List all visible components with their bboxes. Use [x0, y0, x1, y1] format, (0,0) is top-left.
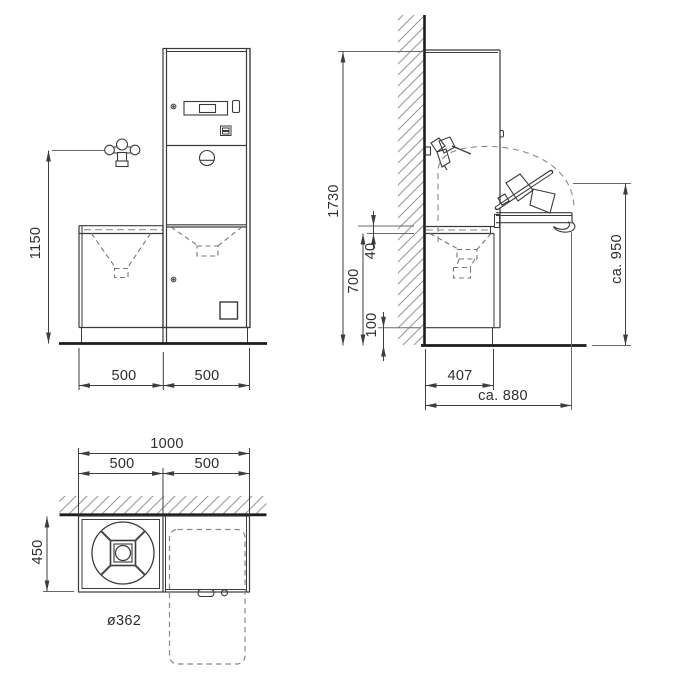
dim-front-right-module-width: 500 [194, 368, 219, 384]
front-view [49, 49, 268, 391]
dim-side-plinth-height: 100 [364, 312, 380, 337]
lock-upper [171, 104, 176, 109]
basin-outline-dashed-right [171, 227, 242, 256]
dim-top-basin-diameter: ø362 [107, 613, 141, 629]
washbasin-counter [79, 226, 163, 328]
lock-lower [171, 277, 176, 282]
service-knob [200, 151, 215, 166]
dim-side-open-depth: ca. 880 [478, 388, 528, 404]
table-latch-plan [198, 590, 228, 597]
dim-front-left-module-width: 500 [111, 368, 136, 384]
dim-side-overall-height: 1730 [326, 184, 342, 217]
top-view [43, 448, 267, 664]
faucet-front [105, 139, 140, 167]
dim-top-left-module-width: 500 [109, 456, 134, 472]
dim-front-faucet-height-lines [49, 151, 105, 344]
folding-table-tilted [497, 172, 555, 213]
faucet-side [426, 137, 472, 170]
basin-outline-dashed-side [430, 234, 491, 279]
coin-slot [221, 126, 232, 136]
access-panel [220, 302, 238, 319]
basin-outline-dashed-left [92, 234, 151, 278]
tall-cabinet [163, 49, 250, 344]
wall-hatch-side [398, 15, 424, 345]
dim-top-overall-width: 1000 [150, 436, 183, 452]
dim-side-body-depth: 407 [447, 368, 472, 384]
dim-side-lines [338, 52, 631, 411]
technical-drawing-sheet: 1150 500 500 1730 700 40 100 ca. 950 407… [0, 0, 680, 681]
dim-top-depth: 450 [30, 539, 46, 564]
dim-side-table-offset: 40 [363, 243, 379, 260]
folding-table-open [495, 213, 575, 232]
plinth-front [79, 49, 250, 344]
dim-side-worktop-height: 700 [346, 268, 362, 293]
cabinet-side [425, 50, 504, 346]
counter-side [425, 227, 495, 234]
side-view [338, 15, 631, 410]
control-panel [184, 101, 240, 116]
unit-plan [79, 516, 250, 592]
dim-front-faucet-height: 1150 [28, 227, 44, 259]
drawing-linework [0, 0, 680, 681]
basin-plan [92, 522, 154, 584]
dim-top-right-module-width: 500 [194, 456, 219, 472]
dim-side-open-table-height: ca. 950 [609, 234, 625, 284]
dim-front-width-lines [79, 348, 250, 390]
